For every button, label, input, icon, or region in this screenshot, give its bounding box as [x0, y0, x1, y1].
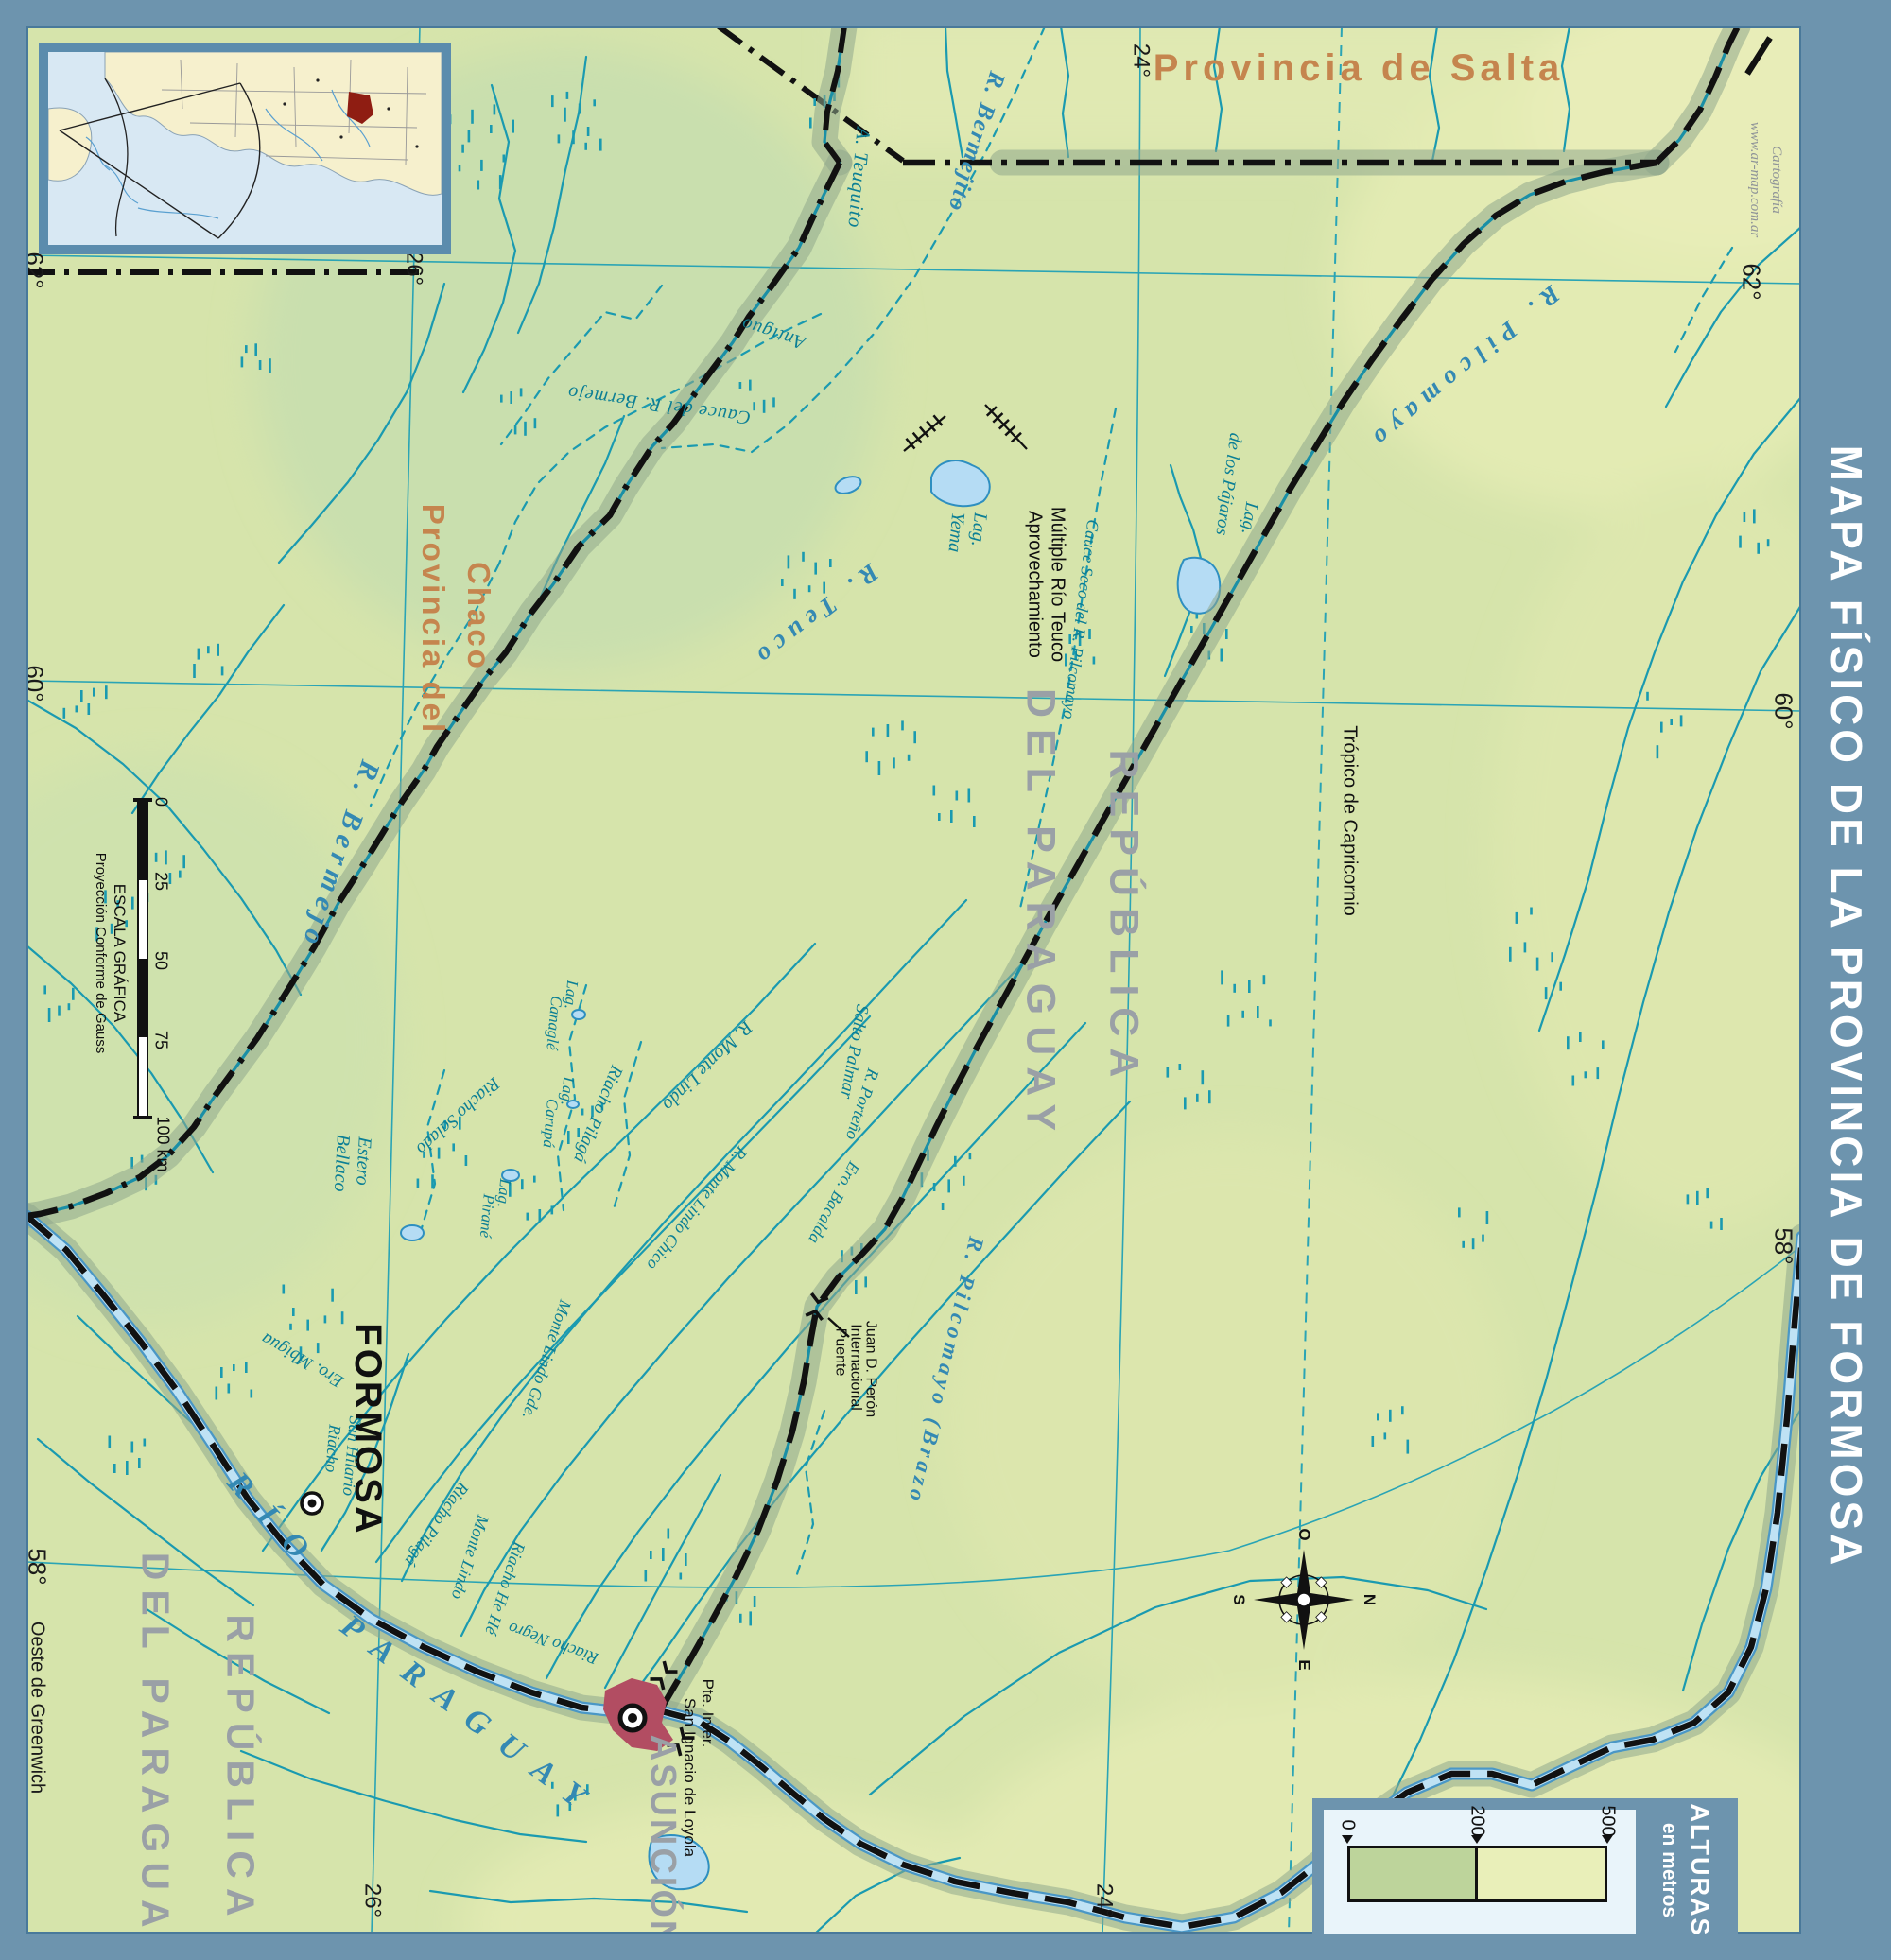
- legend-label-500: 500: [1598, 1805, 1618, 1836]
- legend-tick-200: [1471, 1835, 1483, 1844]
- legend-label-200: 200: [1467, 1805, 1487, 1836]
- compass-rose: O N S E: [1233, 1529, 1375, 1671]
- inset-locator-map: [39, 43, 451, 254]
- map-canvas: [0, 0, 1891, 1960]
- inset-canvas: [48, 52, 442, 245]
- legend-body: 0 200 500 ALTURAS en metros: [1324, 1810, 1726, 1934]
- formosa-physical-map: { "frame": { "title": "MAPA FÍSICO DE LA…: [0, 0, 1891, 1960]
- frame-top: [0, 0, 1891, 26]
- map-title: MAPA FÍSICO DE LA PROVINCIA DE FORMOSA: [1823, 445, 1868, 1570]
- legend-swatch-200-500: [1478, 1848, 1605, 1899]
- legend-tick-0: [1342, 1835, 1353, 1844]
- laguna-pirane-lake: [502, 1170, 519, 1181]
- frame-left: [0, 0, 26, 1960]
- title-bar: MAPA FÍSICO DE LA PROVINCIA DE FORMOSA: [1801, 0, 1891, 1960]
- scale-cap-top: [133, 798, 152, 802]
- elevation-legend: 0 200 500 ALTURAS en metros: [1312, 1798, 1738, 1945]
- scale-cap-bottom: [133, 1116, 152, 1119]
- scale-bar: [137, 800, 148, 1118]
- compass-graphic: [1233, 1529, 1375, 1671]
- legend-color-bar: [1347, 1846, 1607, 1902]
- legend-title-band: [1636, 1810, 1726, 1934]
- legend-label-0: 0: [1338, 1819, 1358, 1830]
- formosa-city-marker: [302, 1493, 322, 1514]
- legend-tick-500: [1602, 1835, 1613, 1844]
- legend-swatch-0-200: [1350, 1848, 1478, 1899]
- asuncion-capital-marker: [620, 1706, 645, 1730]
